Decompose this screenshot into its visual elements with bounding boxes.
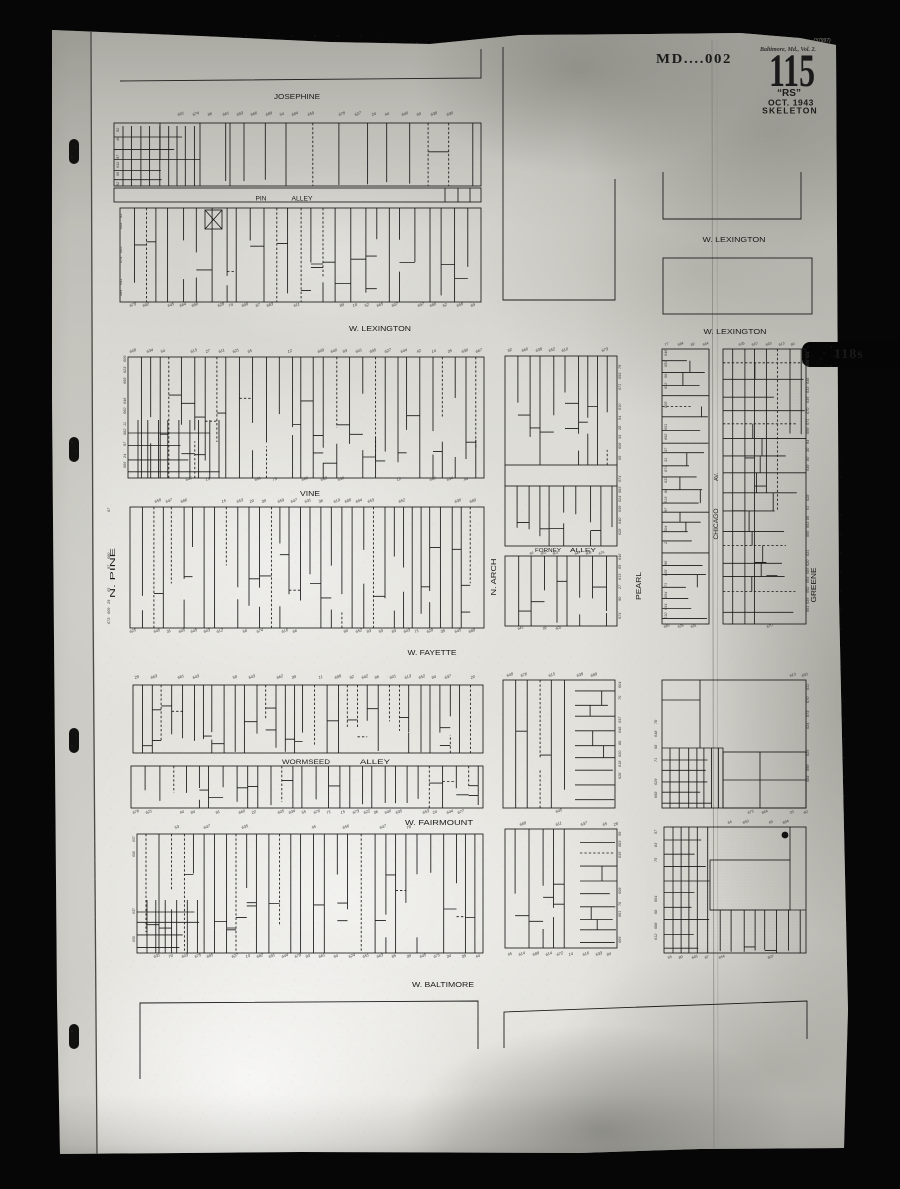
svg-text:663: 663 <box>806 521 810 528</box>
svg-text:FORNEY: FORNEY <box>535 548 561 554</box>
svg-text:W. LEXINGTON: W. LEXINGTON <box>704 327 767 336</box>
svg-text:21: 21 <box>664 540 668 545</box>
svg-text:AV.: AV. <box>714 473 720 481</box>
svg-text:692: 692 <box>664 433 668 440</box>
svg-text:670: 670 <box>806 407 810 414</box>
svg-text:666: 666 <box>806 359 810 366</box>
svg-text:VINE: VINE <box>300 491 320 498</box>
svg-text:666: 666 <box>123 461 127 468</box>
svg-text:654: 654 <box>664 604 668 610</box>
svg-text:ALLEY: ALLEY <box>360 760 390 766</box>
svg-text:637: 637 <box>618 716 622 723</box>
svg-text:WORMSEED: WORMSEED <box>282 760 331 766</box>
svg-text:674: 674 <box>618 476 622 482</box>
svg-text:(37997): (37997) <box>813 38 831 44</box>
svg-text:620: 620 <box>618 750 622 757</box>
svg-text:694: 694 <box>806 577 810 583</box>
svg-text:W. FAYETTE: W. FAYETTE <box>408 648 457 657</box>
svg-text:685: 685 <box>806 567 810 574</box>
svg-text:606: 606 <box>618 442 622 449</box>
svg-text:693: 693 <box>618 372 622 379</box>
svg-text:612: 612 <box>654 933 658 940</box>
svg-text:699: 699 <box>806 764 810 771</box>
svg-text:604: 604 <box>664 526 668 532</box>
svg-text:651: 651 <box>806 606 810 612</box>
svg-text:N. ARCH: N. ARCH <box>491 559 498 596</box>
svg-text:613: 613 <box>618 573 622 580</box>
svg-text:11: 11 <box>123 422 127 426</box>
svg-text:618: 618 <box>618 760 622 767</box>
svg-text:JOSEPHINE: JOSEPHINE <box>274 92 320 101</box>
svg-text:668: 668 <box>654 791 658 798</box>
svg-text:660: 660 <box>123 407 127 414</box>
svg-text:625: 625 <box>806 749 810 756</box>
svg-text:684: 684 <box>806 776 810 782</box>
svg-text:671: 671 <box>618 384 622 390</box>
svg-text:CHICAGO: CHICAGO <box>713 509 720 540</box>
svg-text:661: 661 <box>618 911 622 917</box>
svg-text:SKELETON: SKELETON <box>762 106 818 116</box>
svg-text:648: 648 <box>654 730 658 737</box>
svg-text:651: 651 <box>664 424 668 430</box>
svg-text:613: 613 <box>664 496 668 503</box>
svg-text:646: 646 <box>664 349 668 356</box>
svg-text:W. LEXINGTON: W. LEXINGTON <box>349 324 411 333</box>
svg-text:633: 633 <box>806 386 810 393</box>
svg-text:623: 623 <box>123 366 127 373</box>
svg-text:669: 669 <box>123 377 127 384</box>
svg-text:673: 673 <box>806 710 810 717</box>
svg-text:624: 624 <box>806 352 810 358</box>
svg-text:635: 635 <box>618 851 622 858</box>
svg-text:W. BALTIMORE: W. BALTIMORE <box>412 980 474 989</box>
svg-text:N. PINE: N. PINE <box>110 547 117 598</box>
svg-text:94: 94 <box>806 440 810 444</box>
svg-text:GREENE: GREENE <box>811 567 818 602</box>
svg-text:629: 629 <box>654 778 658 785</box>
svg-text:610: 610 <box>664 612 668 619</box>
svg-text:27: 27 <box>618 584 622 590</box>
svg-text:674: 674 <box>618 613 622 619</box>
svg-text:661: 661 <box>664 372 668 378</box>
svg-text:683: 683 <box>618 486 622 493</box>
svg-text:646: 646 <box>806 377 810 384</box>
svg-text:31: 31 <box>664 458 668 462</box>
svg-text:W. FAIRMOUNT: W. FAIRMOUNT <box>405 818 474 827</box>
svg-text:29: 29 <box>107 599 111 605</box>
svg-text:688: 688 <box>654 922 658 929</box>
svg-text:628: 628 <box>618 528 622 535</box>
svg-text:650: 650 <box>132 936 136 942</box>
svg-text:605: 605 <box>119 246 123 253</box>
svg-text:694: 694 <box>664 592 668 598</box>
svg-text:699: 699 <box>806 427 810 434</box>
svg-text:639: 639 <box>618 505 622 512</box>
svg-text:670: 670 <box>806 696 810 703</box>
svg-text:671: 671 <box>806 419 810 425</box>
svg-text:61: 61 <box>806 506 810 510</box>
svg-text:621: 621 <box>806 550 810 556</box>
svg-text:609: 609 <box>107 607 111 614</box>
svg-text:622: 622 <box>119 222 123 229</box>
svg-text:646: 646 <box>123 397 127 404</box>
svg-text:653: 653 <box>664 360 668 367</box>
svg-text:W. LEXINGTON: W. LEXINGTON <box>703 235 766 244</box>
svg-text:692: 692 <box>806 586 810 593</box>
svg-text:632: 632 <box>116 161 120 168</box>
svg-text:635: 635 <box>806 396 810 403</box>
svg-text:28: 28 <box>618 425 622 431</box>
svg-text:664: 664 <box>654 896 658 902</box>
svg-text:604: 604 <box>618 682 622 688</box>
svg-text:609: 609 <box>618 887 622 894</box>
svg-text:628: 628 <box>618 772 622 779</box>
svg-text:640: 640 <box>618 517 622 524</box>
svg-text:609: 609 <box>123 355 127 362</box>
svg-text:34: 34 <box>618 435 622 439</box>
svg-text:PEARL: PEARL <box>636 572 643 600</box>
svg-text:652: 652 <box>664 382 668 389</box>
svg-text:605: 605 <box>664 401 668 408</box>
svg-text:PIN: PIN <box>256 196 267 203</box>
svg-text:24: 24 <box>123 454 127 459</box>
svg-text:641: 641 <box>119 279 123 285</box>
svg-text:610: 610 <box>618 403 622 410</box>
svg-text:605: 605 <box>664 569 668 576</box>
svg-text:674: 674 <box>664 466 668 472</box>
svg-text:624: 624 <box>618 496 622 502</box>
svg-text:620: 620 <box>806 559 810 566</box>
svg-text:635: 635 <box>806 597 810 604</box>
svg-text:71: 71 <box>664 583 668 587</box>
svg-text:683: 683 <box>618 840 622 847</box>
svg-text:673: 673 <box>107 617 111 624</box>
svg-text:684: 684 <box>119 290 123 296</box>
svg-text:71: 71 <box>654 758 658 762</box>
svg-text:646: 646 <box>618 726 622 733</box>
svg-text:54: 54 <box>618 416 622 420</box>
svg-text:628: 628 <box>806 494 810 501</box>
svg-text:633: 633 <box>664 476 668 483</box>
svg-text:666: 666 <box>806 530 810 537</box>
svg-text:665: 665 <box>618 936 622 943</box>
svg-text:611: 611 <box>806 684 810 690</box>
svg-text:674: 674 <box>119 257 123 263</box>
svg-text:646: 646 <box>618 553 622 560</box>
svg-text:ALLEY: ALLEY <box>292 196 314 203</box>
svg-text:624: 624 <box>806 723 810 729</box>
svg-text:682: 682 <box>123 428 127 435</box>
svg-text:ALLEY: ALLEY <box>570 548 597 554</box>
svg-text:MD....002: MD....002 <box>656 52 732 67</box>
svg-text:649: 649 <box>806 464 810 471</box>
svg-text:686: 686 <box>132 851 136 857</box>
